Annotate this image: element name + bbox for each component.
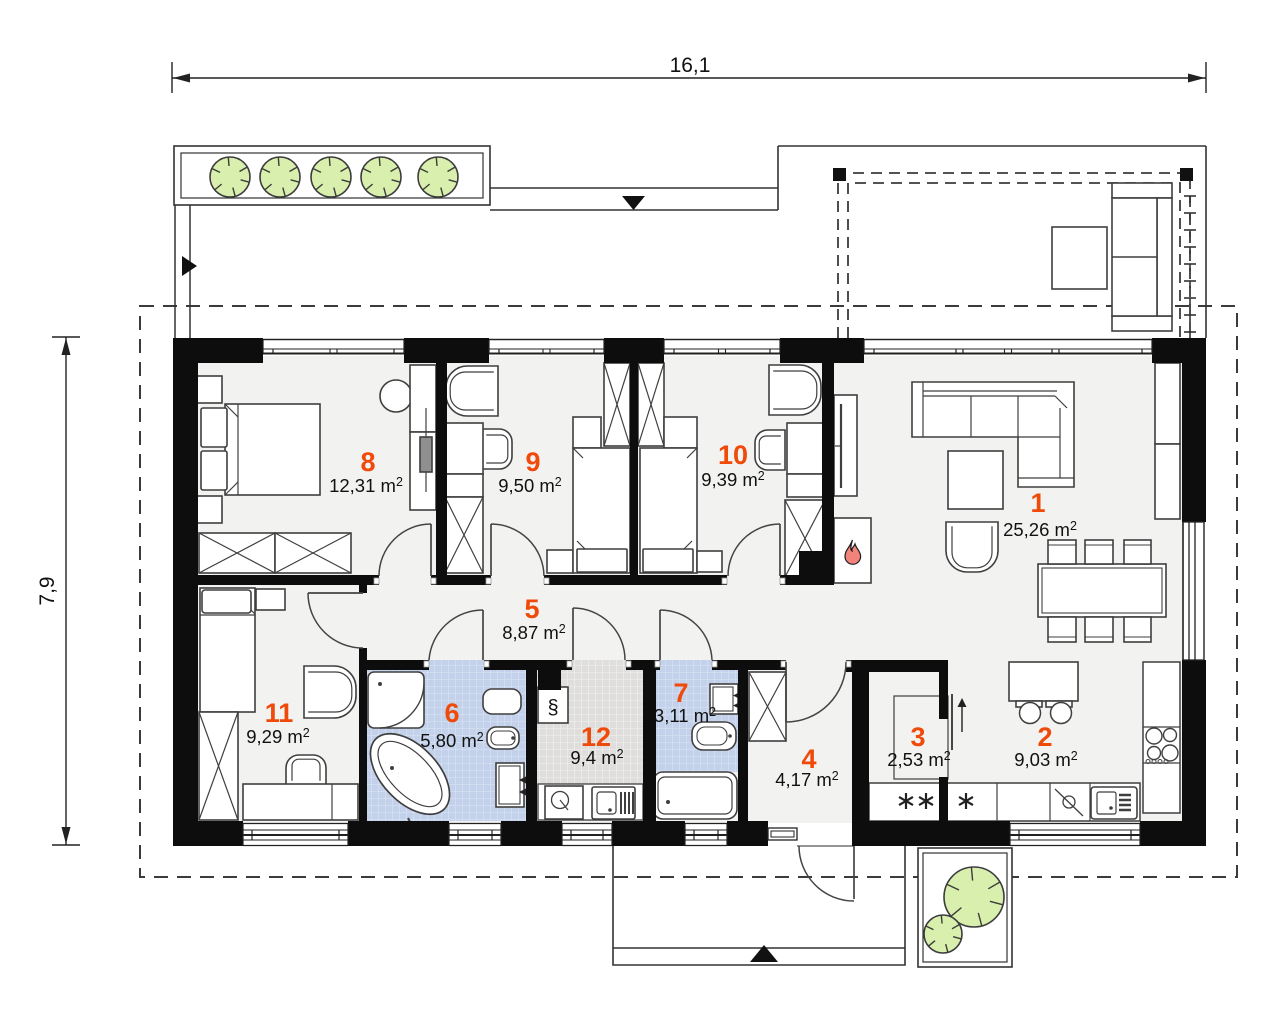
svg-text:9,50 m2: 9,50 m2: [498, 475, 562, 496]
svg-text:25,26 m2: 25,26 m2: [1003, 519, 1077, 540]
svg-text:7,9: 7,9: [36, 576, 59, 605]
svg-text:3,11 m2: 3,11 m2: [654, 705, 716, 726]
svg-text:16,1: 16,1: [670, 54, 711, 77]
svg-text:9: 9: [525, 447, 540, 477]
svg-text:9,03 m2: 9,03 m2: [1014, 749, 1078, 770]
svg-text:7: 7: [673, 678, 688, 708]
svg-text:3: 3: [910, 722, 925, 752]
svg-text:2,53 m2: 2,53 m2: [887, 749, 951, 770]
svg-text:12,31 m2: 12,31 m2: [329, 475, 403, 496]
svg-text:9,4 m2: 9,4 m2: [570, 747, 623, 768]
svg-text:5: 5: [524, 594, 539, 624]
svg-text:10: 10: [718, 440, 748, 470]
svg-text:5,80 m2: 5,80 m2: [420, 730, 484, 751]
svg-text:2: 2: [1037, 722, 1052, 752]
svg-text:11: 11: [265, 698, 294, 728]
svg-text:8: 8: [360, 447, 375, 477]
svg-text:9,39 m2: 9,39 m2: [701, 469, 765, 490]
svg-text:§: §: [547, 697, 558, 719]
svg-text:8,87 m2: 8,87 m2: [502, 622, 566, 643]
svg-text:4,17 m2: 4,17 m2: [775, 769, 839, 790]
svg-text:9,29 m2: 9,29 m2: [246, 726, 310, 747]
svg-text:1: 1: [1030, 488, 1045, 518]
svg-text:6: 6: [444, 698, 459, 728]
